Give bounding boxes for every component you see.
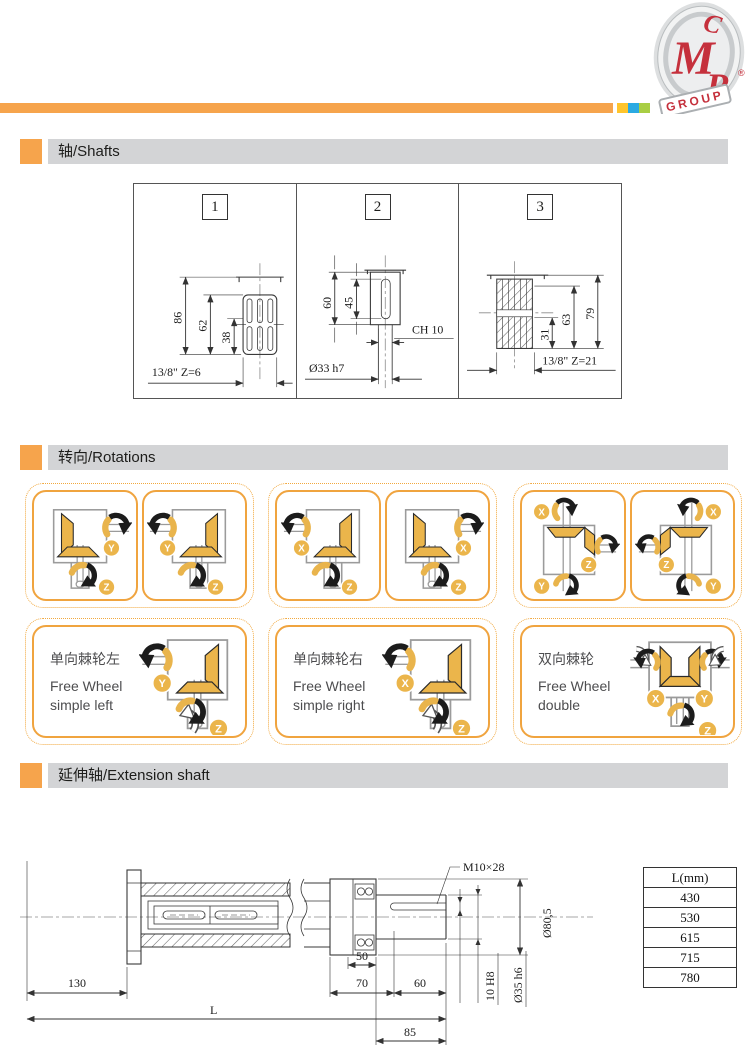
rotation-card: XZY bbox=[630, 490, 736, 601]
shaft-panel-1: 86 62 38 13/8" Z=6 1 bbox=[134, 184, 297, 398]
panel-number: 3 bbox=[527, 194, 553, 220]
svg-text:Z: Z bbox=[215, 723, 222, 735]
svg-text:60: 60 bbox=[319, 297, 333, 309]
table-cell: 615 bbox=[644, 928, 737, 948]
gearbox-rotation-icon: XZ bbox=[390, 497, 484, 597]
rotation-card: XZY bbox=[520, 490, 626, 601]
freewheel-title-zh: 单向棘轮右 bbox=[293, 649, 382, 669]
section-bullet-extension bbox=[20, 763, 42, 788]
rotation-card: YZ bbox=[32, 490, 138, 601]
svg-text:Z: Z bbox=[664, 560, 670, 571]
svg-text:45: 45 bbox=[341, 297, 355, 309]
panel-number: 1 bbox=[202, 194, 228, 220]
freewheel-title-en: Free Wheel bbox=[50, 677, 139, 696]
rotation-group-1: YZ YZ bbox=[25, 483, 254, 608]
shafts-figure: 86 62 38 13/8" Z=6 1 60 bbox=[133, 183, 622, 399]
svg-text:60: 60 bbox=[414, 976, 426, 990]
svg-text:X: X bbox=[460, 544, 467, 555]
svg-text:Y: Y bbox=[159, 678, 167, 690]
svg-text:Y: Y bbox=[538, 582, 545, 593]
freewheel-title-en2: double bbox=[538, 696, 627, 715]
svg-text:Y: Y bbox=[701, 693, 709, 705]
section-title-shafts: 轴/Shafts bbox=[48, 139, 728, 164]
rotation-group-3: XZY XZY bbox=[513, 483, 742, 608]
gearbox-rotation-icon: XZ bbox=[382, 629, 488, 735]
length-table: L(mm) 430 530 615 715 780 bbox=[643, 867, 737, 988]
svg-text:Y: Y bbox=[108, 544, 115, 555]
svg-text:Z: Z bbox=[346, 583, 352, 594]
freewheel-title-en: Free Wheel bbox=[293, 677, 382, 696]
freewheel-title-en: Free Wheel bbox=[538, 677, 627, 696]
gearbox-rotation-icon: YZ bbox=[139, 629, 245, 735]
svg-text:Ø35 h6: Ø35 h6 bbox=[511, 967, 525, 1003]
rotation-group-2: XZ XZ bbox=[268, 483, 497, 608]
brand-logo: C M R GROUP ® bbox=[650, 0, 748, 114]
gearbox-rotation-icon: XZY bbox=[635, 497, 729, 597]
svg-text:X: X bbox=[402, 678, 410, 690]
svg-text:13/8" Z=21: 13/8" Z=21 bbox=[543, 353, 598, 367]
svg-text:Y: Y bbox=[165, 544, 172, 555]
freewheel-title-en2: simple right bbox=[293, 696, 382, 715]
table-cell: 430 bbox=[644, 888, 737, 908]
freewheel-group-double: 双向棘轮 Free Wheel double XYZ bbox=[513, 618, 742, 745]
svg-text:X: X bbox=[652, 693, 660, 705]
top-accent-bar bbox=[0, 103, 613, 113]
gearbox-rotation-icon: YZ bbox=[38, 497, 132, 597]
svg-text:X: X bbox=[710, 507, 717, 518]
svg-text:Z: Z bbox=[213, 583, 219, 594]
gearbox-rotation-icon: XZY bbox=[526, 497, 620, 597]
svg-text:X: X bbox=[538, 507, 545, 518]
section-bullet-rotations bbox=[20, 445, 42, 470]
panel-number: 2 bbox=[365, 194, 391, 220]
table-cell: 715 bbox=[644, 948, 737, 968]
svg-text:70: 70 bbox=[356, 976, 368, 990]
svg-text:86: 86 bbox=[171, 312, 185, 324]
shaft-panel-3: 79 63 31 13/8" Z=21 3 bbox=[459, 184, 621, 398]
freewheel-title-en2: simple left bbox=[50, 696, 139, 715]
table-cell: 530 bbox=[644, 908, 737, 928]
freewheel-card: 单向棘轮左 Free Wheel simple left YZ bbox=[32, 625, 247, 738]
shaft-panel-2: 60 45 CH 10 Ø33 h7 2 bbox=[297, 184, 460, 398]
svg-text:CH 10: CH 10 bbox=[412, 323, 443, 337]
freewheel-group-left: 单向棘轮左 Free Wheel simple left YZ bbox=[25, 618, 254, 745]
svg-text:Ø33 h7: Ø33 h7 bbox=[309, 361, 344, 375]
freewheel-group-right: 单向棘轮右 Free Wheel simple right XZ bbox=[268, 618, 497, 745]
svg-text:M10×28: M10×28 bbox=[463, 860, 504, 874]
svg-text:130: 130 bbox=[68, 976, 86, 990]
freewheel-text: 双向棘轮 Free Wheel double bbox=[522, 649, 627, 715]
svg-text:Z: Z bbox=[704, 725, 711, 734]
freewheel-text: 单向棘轮左 Free Wheel simple left bbox=[34, 649, 139, 715]
section-bullet-shafts bbox=[20, 139, 42, 164]
freewheel-text: 单向棘轮右 Free Wheel simple right bbox=[277, 649, 382, 715]
svg-text:31: 31 bbox=[538, 329, 552, 341]
svg-text:Y: Y bbox=[710, 582, 717, 593]
gearbox-rotation-icon: YZ bbox=[147, 497, 241, 597]
rotation-card: XZ bbox=[385, 490, 491, 601]
freewheel-card: 单向棘轮右 Free Wheel simple right XZ bbox=[275, 625, 490, 738]
svg-text:10 H8: 10 H8 bbox=[483, 971, 497, 1001]
svg-text:Z: Z bbox=[456, 583, 462, 594]
svg-text:85: 85 bbox=[404, 1025, 416, 1039]
freewheel-title-zh: 单向棘轮左 bbox=[50, 649, 139, 669]
rotation-card: XZ bbox=[275, 490, 381, 601]
registered-mark: ® bbox=[738, 68, 745, 78]
svg-text:13/8" Z=6: 13/8" Z=6 bbox=[152, 365, 201, 379]
svg-text:63: 63 bbox=[559, 314, 573, 326]
accent-square-green bbox=[639, 103, 650, 113]
accent-square-yellow bbox=[617, 103, 628, 113]
freewheel-title-zh: 双向棘轮 bbox=[538, 649, 627, 669]
svg-text:Ø80,5: Ø80,5 bbox=[540, 908, 554, 938]
svg-text:38: 38 bbox=[219, 332, 233, 344]
extension-shaft-drawing: M10×28 Ø80,5 10 H8 Ø35 h6 50 70 60 130 L… bbox=[8, 843, 640, 1048]
table-header-cell: L(mm) bbox=[644, 868, 737, 888]
freewheel-card: 双向棘轮 Free Wheel double XYZ bbox=[520, 625, 735, 738]
svg-text:50: 50 bbox=[356, 949, 368, 963]
accent-square-blue bbox=[628, 103, 639, 113]
svg-text:Z: Z bbox=[103, 583, 109, 594]
rotation-card: YZ bbox=[142, 490, 248, 601]
svg-text:79: 79 bbox=[583, 308, 597, 320]
section-title-extension: 延伸轴/Extension shaft bbox=[48, 763, 728, 788]
svg-text:X: X bbox=[298, 544, 305, 555]
svg-text:Z: Z bbox=[458, 723, 465, 735]
svg-text:62: 62 bbox=[195, 320, 209, 332]
catalog-page: C M R GROUP ® 轴/Shafts bbox=[0, 0, 750, 1056]
gearbox-rotation-icon: XYZ bbox=[627, 629, 733, 735]
svg-text:L: L bbox=[210, 1003, 217, 1017]
table-cell: 780 bbox=[644, 968, 737, 988]
section-title-rotations: 转向/Rotations bbox=[48, 445, 728, 470]
svg-text:Z: Z bbox=[585, 560, 591, 571]
gearbox-rotation-icon: XZ bbox=[281, 497, 375, 597]
